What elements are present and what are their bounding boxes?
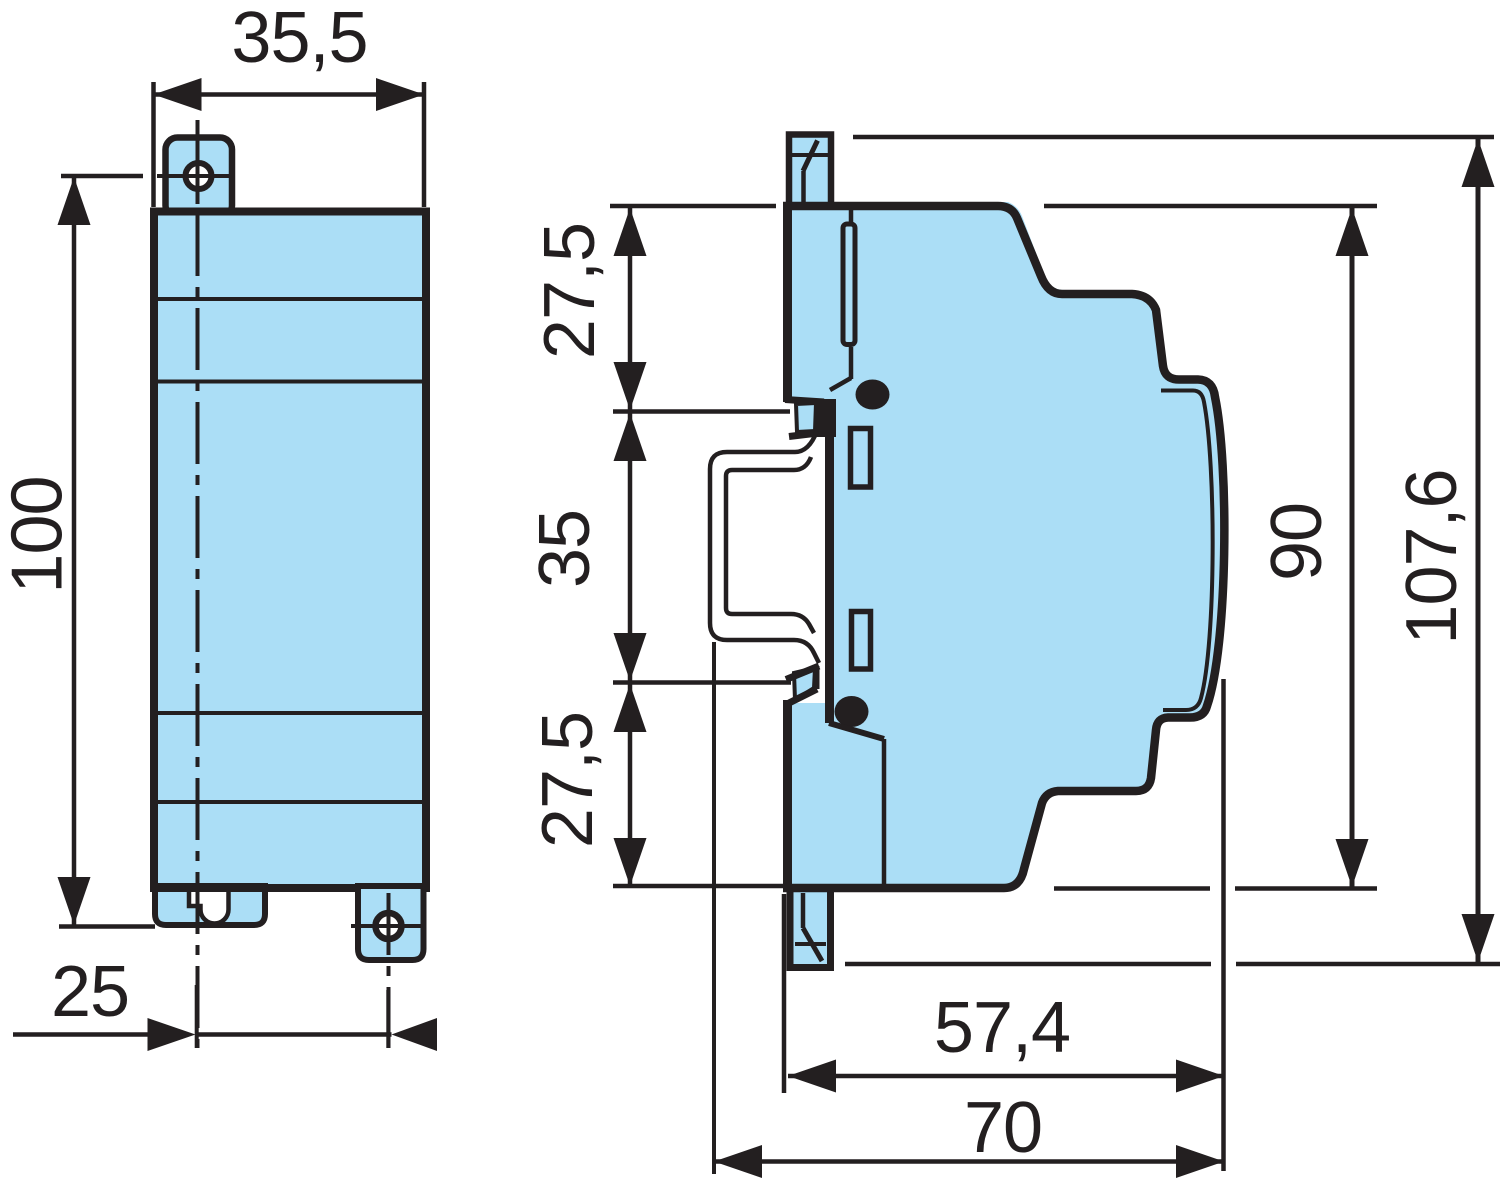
- svg-text:27,5: 27,5: [530, 223, 610, 359]
- svg-text:70: 70: [964, 1088, 1042, 1168]
- svg-text:107,6: 107,6: [1392, 469, 1472, 644]
- svg-text:35: 35: [525, 510, 605, 588]
- svg-text:57,4: 57,4: [934, 988, 1070, 1068]
- svg-text:100: 100: [0, 476, 78, 593]
- svg-text:25: 25: [51, 952, 129, 1032]
- svg-text:27,5: 27,5: [528, 712, 608, 848]
- svg-text:35,5: 35,5: [231, 0, 367, 78]
- svg-text:90: 90: [1257, 503, 1337, 581]
